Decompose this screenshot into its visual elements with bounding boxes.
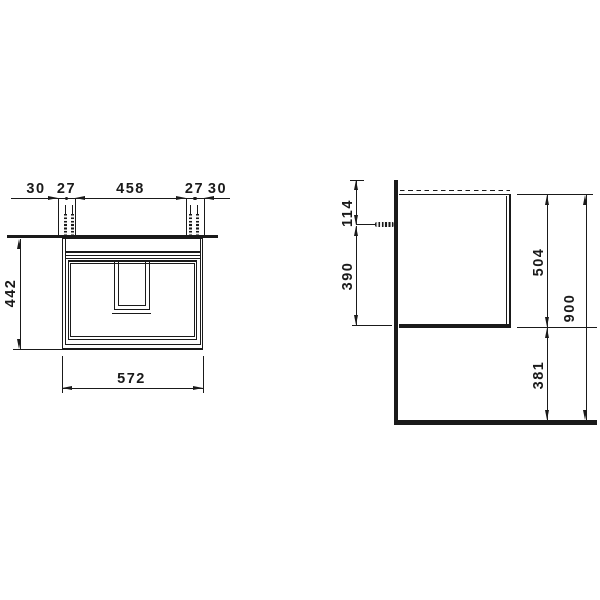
dim-label-442: 442 [3,279,18,308]
dim-label-30-left: 30 [26,182,45,197]
top-dim-ext-2 [75,198,76,235]
mounting-screw-3 [189,214,193,235]
screw-dim-line [356,226,357,326]
offset-dim-arrow-top [354,180,358,190]
mounting-screw-1 [64,214,68,235]
top-dim-ext-4 [204,198,205,235]
dim-label-27-right: 27 [185,182,204,197]
dim-label-390: 390 [340,262,355,291]
top-dim-ext-3 [186,198,187,235]
screw-pin-3 [190,205,191,215]
technical-drawing-canvas: 30 27 458 27 30 442 572 [0,0,600,600]
top-rail-line-1 [65,251,201,252]
screw-pin-1 [65,205,66,215]
dim-label-900: 900 [562,293,577,322]
total-dim-arrow-bottom [583,410,587,420]
top-rail-line-2 [65,255,201,256]
screw-pin-4 [197,205,198,215]
body-dim-line [547,195,548,328]
body-dim-arrow-bottom [545,317,549,327]
top-dim-arrow-2 [75,196,85,200]
cabinet-side-right-outer [509,194,511,327]
countertop-dashed-line [400,190,511,191]
dim-label-504: 504 [531,248,546,277]
width-dim-arrow-left [62,386,72,390]
top-dim-dot-right [193,197,197,201]
dim-label-458: 458 [116,182,145,197]
offset-dim-ext [356,224,375,225]
siphon-cutout-inner [118,261,146,306]
cabinet-side-top [399,194,511,195]
screw-dim-arrow-top [354,226,358,236]
dim-label-114: 114 [340,199,355,227]
total-dim-arrow-top [583,195,587,205]
top-dim-line [11,198,230,199]
clearance-dim-arrow-top [545,328,549,338]
screw-dim-arrow-bottom [354,315,358,325]
dim-label-27-left: 27 [57,182,76,197]
wall-line [394,180,399,420]
width-dim-arrow-right [193,386,203,390]
top-dim-dot-left [65,197,69,201]
height-dim-arrow-top [17,239,21,249]
dim-label-572: 572 [117,372,146,387]
width-dim-line [62,388,203,389]
body-dim-arrow-top [545,195,549,205]
total-dim-line [586,195,587,421]
wall-anchor-screw [375,222,394,227]
side-top-ext-line [517,194,593,195]
clearance-dim-arrow-bottom [545,410,549,420]
cabinet-side-right-inner [506,196,507,326]
screw-pin-2 [72,205,73,215]
dim-label-30-right: 30 [208,182,227,197]
top-rail-line-3 [65,258,201,259]
dim-label-381: 381 [531,360,546,389]
height-dim-arrow-bottom [17,339,21,349]
clearance-dim-line [547,328,548,421]
siphon-cutout-underline [112,313,151,314]
screw-dim-ext [352,325,393,326]
height-dim-ext [13,349,62,350]
cabinet-side-bottom [399,324,511,328]
top-dim-ext-1 [58,198,59,235]
height-dim-line [20,239,21,349]
floor-line [394,420,597,425]
mounting-screw-4 [196,214,200,235]
